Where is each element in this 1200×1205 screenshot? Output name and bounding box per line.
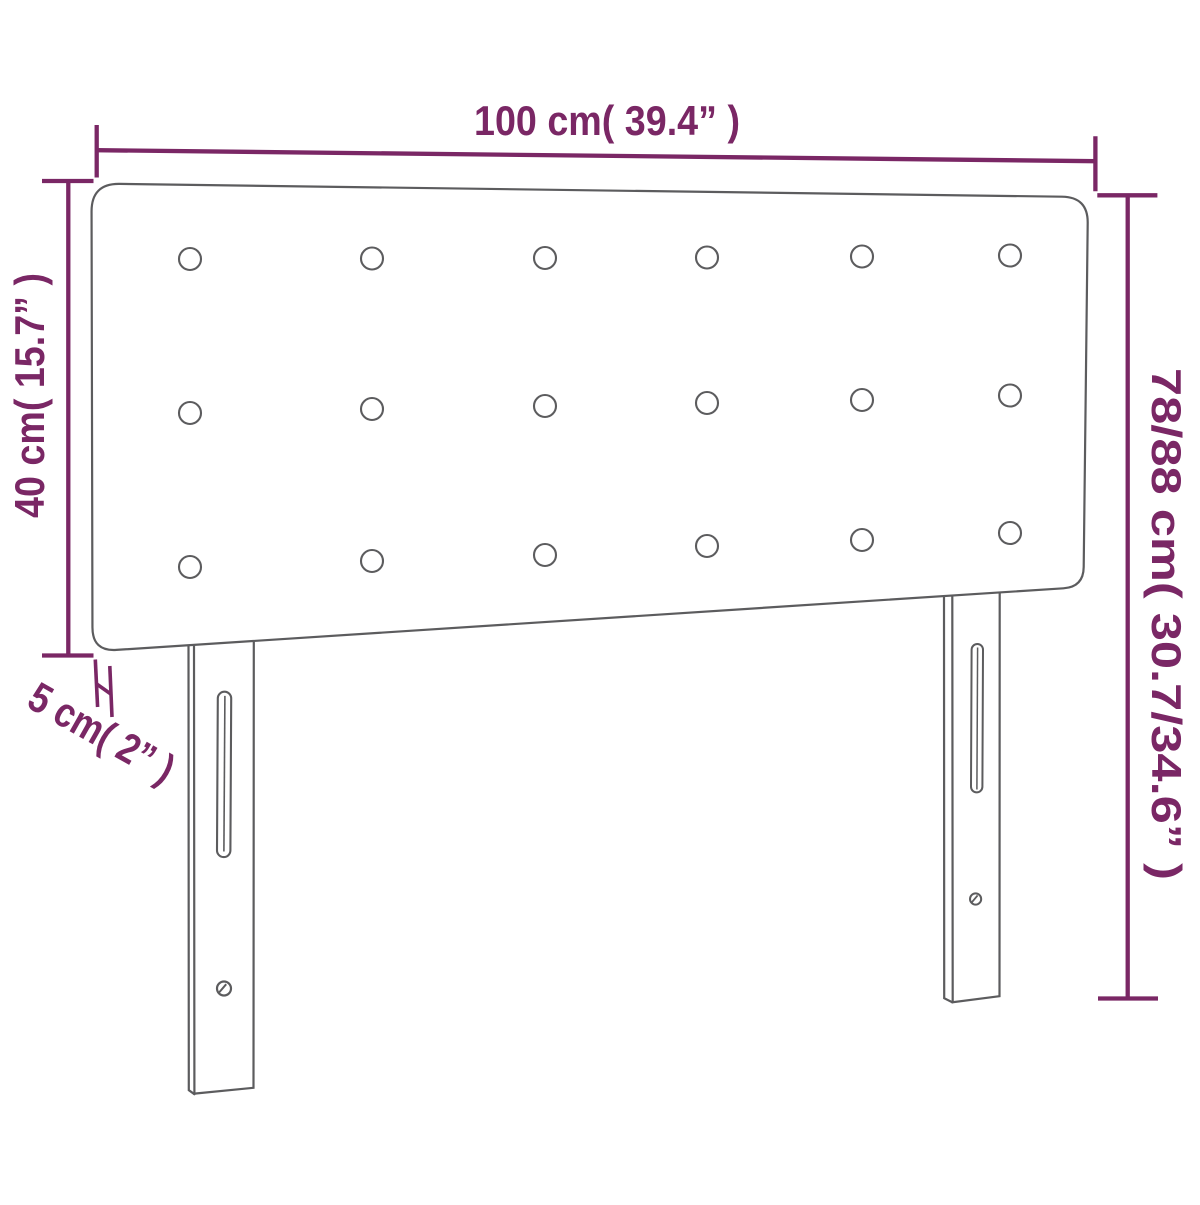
- svg-text:78/88 cm( 30.7/34.6” ): 78/88 cm( 30.7/34.6” ): [1143, 368, 1190, 880]
- svg-text:100 cm( 39.4” ): 100 cm( 39.4” ): [474, 97, 740, 144]
- svg-text:40 cm( 15.7” ): 40 cm( 15.7” ): [6, 273, 53, 518]
